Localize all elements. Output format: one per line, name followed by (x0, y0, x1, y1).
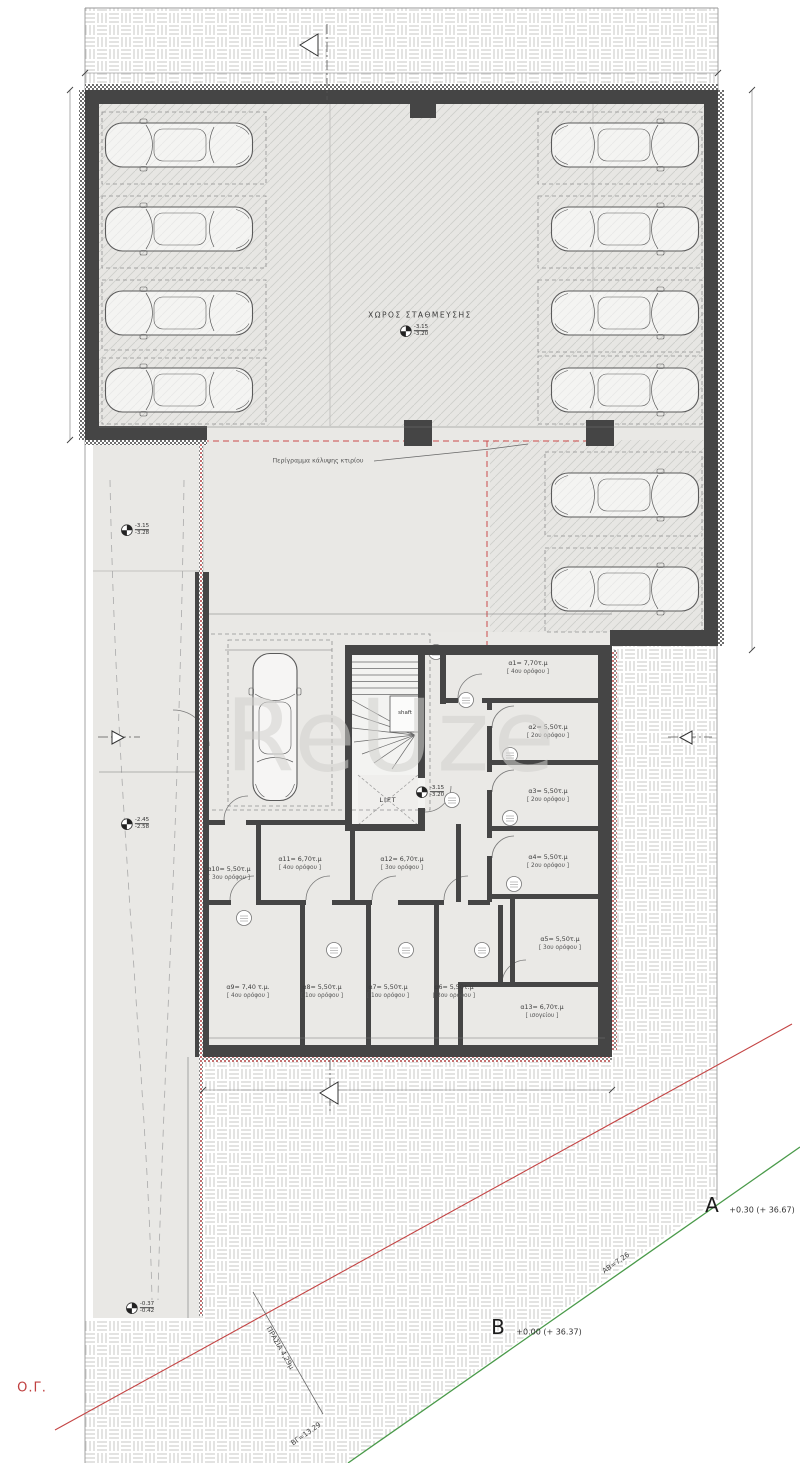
room-area: α2= 5,50τ.μ (527, 724, 569, 733)
room-area: α12= 6,70τ.μ (380, 856, 423, 865)
level-bottom-value: -3.20 (430, 793, 444, 799)
floor-plan-canvas: ΧΩΡΟΣ ΣΤΑΘΜΕΥΣΗΣ Περίγραμμα κάλυψης κτιρ… (0, 0, 800, 1463)
room-area: α7= 5,50τ.μ (367, 984, 409, 993)
level-bottom-value: -3.20 (414, 332, 428, 338)
level-top-value: -0.37 (140, 1301, 154, 1308)
room-area: α11= 6,70τ.μ (278, 856, 321, 865)
room-label: α9= 7,40 τ.μ. [ 4ου ορόφου ] (226, 984, 269, 1000)
room-floor: [ 4ου ορόφου ] (278, 864, 321, 872)
room-label: α12= 6,70τ.μ [ 3ου ορόφου ] (380, 856, 423, 872)
room-label: α8= 5,50τ.μ [ 1ου ορόφου ] (301, 984, 343, 1000)
level-top-value: -3.15 (135, 523, 149, 530)
level-bottom-value: -3.28 (135, 531, 149, 537)
room-floor: [ 1ου ορόφου ] (367, 992, 409, 1000)
room-floor: [ 2ου ορόφου ] (527, 732, 569, 740)
room-floor: [ 3ου ορόφου ] (433, 992, 475, 1000)
room-area: α9= 7,40 τ.μ. (226, 984, 269, 993)
room-label: α2= 5,50τ.μ [ 2ου ορόφου ] (527, 724, 569, 740)
room-area: α3= 5,50τ.μ (527, 788, 569, 797)
plan-drawing (0, 0, 800, 1463)
room-label: α13= 6,70τ.μ [ ισογείου ] (520, 1004, 563, 1020)
level-icon (416, 786, 428, 798)
room-area: α13= 6,70τ.μ (520, 1004, 563, 1013)
level-bottom-value: -0.42 (140, 1309, 154, 1315)
level-icon (400, 325, 412, 337)
pavement-top (85, 8, 718, 90)
room-floor: [ 3ου ορόφου ] (380, 864, 423, 872)
room-area: α10= 5,50τ.μ (207, 866, 250, 875)
level-marker: -3.15 -3.20 (416, 785, 444, 799)
room-area: α6= 5,50τ.μ (433, 984, 475, 993)
level-marker: -3.15 -3.28 (121, 523, 149, 537)
room-label: α10= 5,50τ.μ [ 3ου ορόφου ] (207, 866, 250, 882)
level-top-value: -2.45 (135, 817, 149, 824)
room-label: α6= 5,50τ.μ [ 3ου ορόφου ] (433, 984, 475, 1000)
room-label: α3= 5,50τ.μ [ 2ου ορόφου ] (527, 788, 569, 804)
room-label: α5= 5,50τ.μ [ 3ου ορόφου ] (539, 936, 581, 952)
room-label: α11= 6,70τ.μ [ 4ου ορόφου ] (278, 856, 321, 872)
level-top-value: -3.15 (414, 324, 428, 331)
room-floor: [ 3ου ορόφου ] (207, 874, 250, 882)
og-label: Ο.Γ. (17, 1381, 47, 1396)
room-floor: [ 4ου ορόφου ] (226, 992, 269, 1000)
room-area: α4= 5,50τ.μ (527, 854, 569, 863)
room-floor: [ 3ου ορόφου ] (539, 944, 581, 952)
room-floor: [ 1ου ορόφου ] (301, 992, 343, 1000)
level-icon (126, 1302, 138, 1314)
lift-label: LIFT (379, 796, 396, 804)
site-point-b: B (491, 1315, 505, 1339)
room-floor: [ ισογείου ] (520, 1012, 563, 1020)
shaft-label: shaft (398, 710, 412, 716)
level-top-value: -3.15 (430, 785, 444, 792)
room-floor: [ 2ου ορόφου ] (527, 862, 569, 870)
level-bottom-value: -2.58 (135, 825, 149, 831)
room-floor: [ 2ου ορόφου ] (527, 796, 569, 804)
room-label: α1= 7,70τ.μ [ 4ου ορόφου ] (507, 660, 549, 676)
room-label: α4= 5,50τ.μ [ 2ου ορόφου ] (527, 854, 569, 870)
level-icon (121, 524, 133, 536)
level-marker: -3.15 -3.20 (400, 324, 428, 338)
room-area: α1= 7,70τ.μ (507, 660, 549, 669)
site-point-b-elevation: +0.00 (+ 36.37) (516, 1328, 581, 1337)
perimeter-note: Περίγραμμα κάλυψης κτιρίου (272, 458, 363, 465)
site-point-a-elevation: +0.30 (+ 36.67) (729, 1206, 794, 1215)
room-area: α8= 5,50τ.μ (301, 984, 343, 993)
site-point-a: A (705, 1193, 719, 1217)
room-label: α7= 5,50τ.μ [ 1ου ορόφου ] (367, 984, 409, 1000)
level-marker: -2.45 -2.58 (121, 817, 149, 831)
room-area: α5= 5,50τ.μ (539, 936, 581, 945)
garage-label: ΧΩΡΟΣ ΣΤΑΘΜΕΥΣΗΣ (368, 311, 472, 320)
level-marker: -0.37 -0.42 (126, 1301, 154, 1315)
level-icon (121, 818, 133, 830)
room-floor: [ 4ου ορόφου ] (507, 668, 549, 676)
